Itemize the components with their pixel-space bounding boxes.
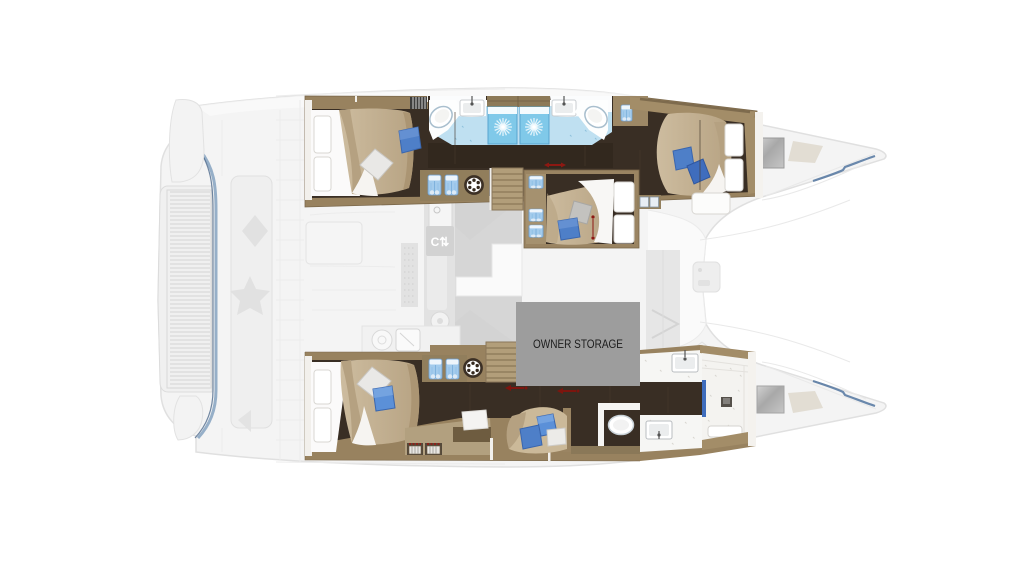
svg-text:C⇅: C⇅: [431, 235, 450, 249]
svg-text:OWNER STORAGE: OWNER STORAGE: [533, 339, 623, 351]
